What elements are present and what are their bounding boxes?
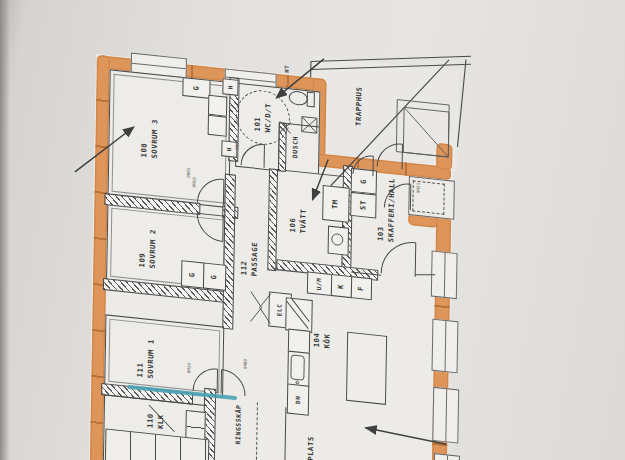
label-ht: HT <box>283 65 291 74</box>
hatch-box-diagonal <box>286 298 309 328</box>
room-label-dusch: DUSCH <box>291 136 301 159</box>
room-label-kok: 104KÖK <box>312 332 333 349</box>
label-matplats: PLATS <box>306 436 317 460</box>
arrow-kok <box>365 428 446 444</box>
shower-drain-icon <box>280 121 291 133</box>
room-label-sovrum1: 111SOVRUM 1 <box>135 338 157 380</box>
stair-diagonal <box>331 48 449 198</box>
door-mark: 9M10 <box>187 363 192 374</box>
arrow-sovrum3 <box>75 121 134 178</box>
linework-overlay <box>65 0 483 460</box>
room-label-sovrum2: 109SOVRUM 2 <box>137 228 159 270</box>
label-forvaringsskap: RINGSSKÅP <box>234 404 244 445</box>
room-label-skafferi-hall: 103SKAFFERI/HALL <box>376 177 398 243</box>
toilet-icon <box>289 90 314 107</box>
room-label-klk: 110KLK <box>146 413 167 430</box>
folding-doors-icon <box>250 292 270 324</box>
room-label-trapphus: TRAPPHUS <box>354 86 365 127</box>
floorplan-drawing: 9M21 G H H G G G ST TM U/M K <box>90 55 469 460</box>
door-mark: 04B0 <box>244 359 249 370</box>
building-facade-lines <box>310 39 471 148</box>
floorplan-photo: 9M21 G H H G G G ST TM U/M K <box>0 0 625 460</box>
arrow-tvatt <box>313 158 329 202</box>
sink-bowl-icon <box>291 355 304 385</box>
washing-machine-drum-icon <box>332 233 343 245</box>
washbasin-icon <box>302 117 317 134</box>
paper-edge-shadow <box>0 0 10 460</box>
room-label-sovrum3: 108SOVRUM 3 <box>139 118 161 160</box>
room-label-passage: 112PASSAGE <box>239 240 260 277</box>
room-label-tvatt: 106TVÄTT <box>288 207 309 234</box>
door-mark: 0901 <box>235 140 240 151</box>
elevator-shaft-icon <box>396 100 449 157</box>
door-mark: 9M10 <box>193 177 198 188</box>
